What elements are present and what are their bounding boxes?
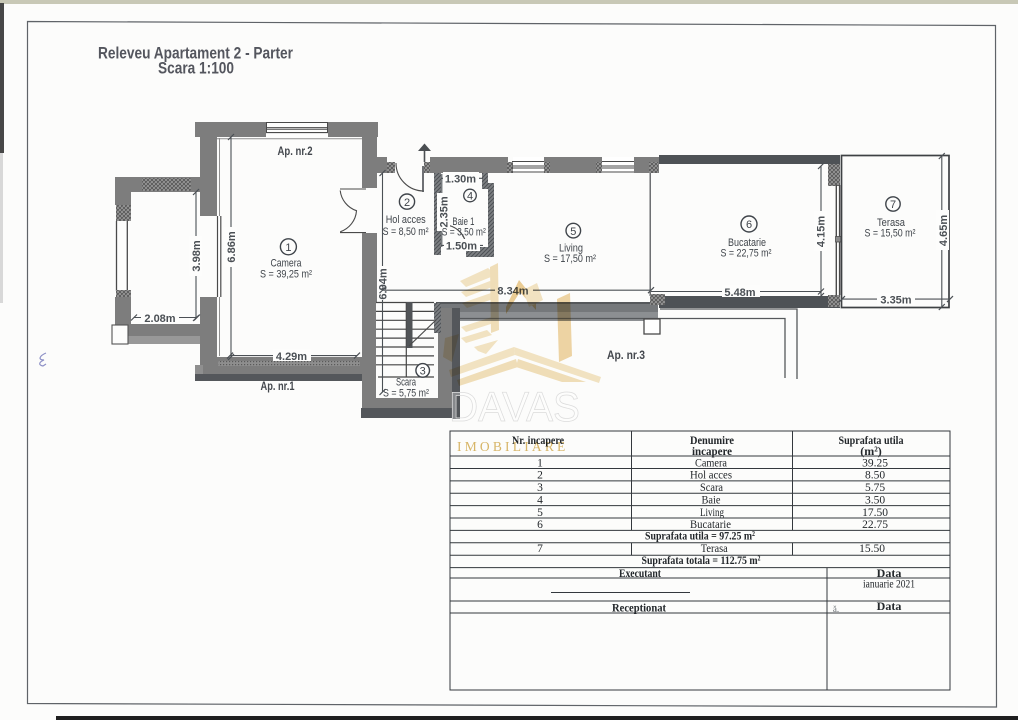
svg-text:Hol acces: Hol acces xyxy=(386,214,426,226)
svg-text:incapere: incapere xyxy=(692,444,733,458)
svg-text:8.50: 8.50 xyxy=(865,470,885,482)
svg-text:1: 1 xyxy=(285,242,291,254)
svg-text:1: 1 xyxy=(537,457,543,469)
svg-text:6: 6 xyxy=(537,519,543,531)
svg-text:6.94m: 6.94m xyxy=(378,268,390,299)
svg-text:Receptionat: Receptionat xyxy=(612,601,666,615)
svg-text:S = 15,50 m²: S = 15,50 m² xyxy=(865,228,916,240)
svg-text:Living: Living xyxy=(700,507,724,519)
svg-text:S = 17,50 m²: S = 17,50 m² xyxy=(544,253,596,265)
svg-text:5.75: 5.75 xyxy=(865,482,885,494)
svg-text:4: 4 xyxy=(467,191,473,203)
svg-text:1.50m: 1.50m xyxy=(446,241,477,253)
svg-text:Suprafata utila = 97.25 m²: Suprafata utila = 97.25 m² xyxy=(645,529,755,543)
svg-text:5: 5 xyxy=(570,226,576,238)
svg-text:17.50: 17.50 xyxy=(862,507,888,519)
svg-text:ianuarie 2021: ianuarie 2021 xyxy=(863,579,915,591)
svg-text:Ap. nr.1: Ap. nr.1 xyxy=(261,379,295,393)
svg-text:4.29m: 4.29m xyxy=(276,351,307,363)
svg-text:Baie: Baie xyxy=(702,494,721,506)
svg-text:15.50: 15.50 xyxy=(859,543,885,555)
svg-text:Scara 1:100: Scara 1:100 xyxy=(158,60,234,78)
svg-text:39.25: 39.25 xyxy=(862,457,888,469)
svg-text:3.35m: 3.35m xyxy=(880,294,911,306)
svg-text:S = 8,50 m²: S = 8,50 m² xyxy=(383,226,429,238)
svg-text:3.98m: 3.98m xyxy=(191,240,203,271)
svg-text:3: 3 xyxy=(537,482,543,494)
svg-text:3.50: 3.50 xyxy=(865,494,885,506)
svg-text:1.30m: 1.30m xyxy=(445,174,476,186)
svg-text:6.86m: 6.86m xyxy=(226,231,238,262)
svg-text:Scara: Scara xyxy=(700,482,723,494)
svg-text:S = 5,75 m²: S = 5,75 m² xyxy=(383,387,429,399)
svg-text:Suprafata totala = 112.75 m²: Suprafata totala = 112.75 m² xyxy=(642,553,761,567)
svg-text:7: 7 xyxy=(890,199,896,211)
svg-text:Ap. nr.3: Ap. nr.3 xyxy=(607,348,645,362)
svg-text:5: 5 xyxy=(537,507,543,519)
svg-text:7: 7 xyxy=(537,543,543,555)
svg-text:3: 3 xyxy=(420,366,426,378)
svg-text:Data: Data xyxy=(877,599,902,613)
svg-text:Executant: Executant xyxy=(619,566,661,580)
svg-text:2: 2 xyxy=(537,470,543,482)
svg-text:4.65m: 4.65m xyxy=(938,215,950,246)
svg-text:4.15m: 4.15m xyxy=(816,216,828,247)
svg-text:22.75: 22.75 xyxy=(862,519,888,531)
svg-text:S = 22,75 m²: S = 22,75 m² xyxy=(721,248,772,260)
svg-text:2.35m: 2.35m xyxy=(438,196,450,227)
svg-text:2.08m: 2.08m xyxy=(144,313,175,325)
svg-text:5.48m: 5.48m xyxy=(724,287,755,299)
svg-text:S = 3,50 m²: S = 3,50 m² xyxy=(442,227,486,239)
svg-text:Camera: Camera xyxy=(695,457,727,469)
svg-text:4: 4 xyxy=(537,494,543,506)
svg-text:ă.: ă. xyxy=(833,604,839,614)
svg-text:Hol acces: Hol acces xyxy=(690,470,732,482)
svg-text:IMOBILIARE: IMOBILIARE xyxy=(457,439,569,454)
svg-text:Ap. nr.2: Ap. nr.2 xyxy=(278,144,313,158)
svg-text:2: 2 xyxy=(404,197,410,209)
svg-text:S = 39,25 m²: S = 39,25 m² xyxy=(260,269,312,281)
svg-text:6: 6 xyxy=(746,219,752,231)
svg-text:(m²): (m²) xyxy=(860,444,882,458)
svg-text:DAVAS: DAVAS xyxy=(449,383,580,430)
